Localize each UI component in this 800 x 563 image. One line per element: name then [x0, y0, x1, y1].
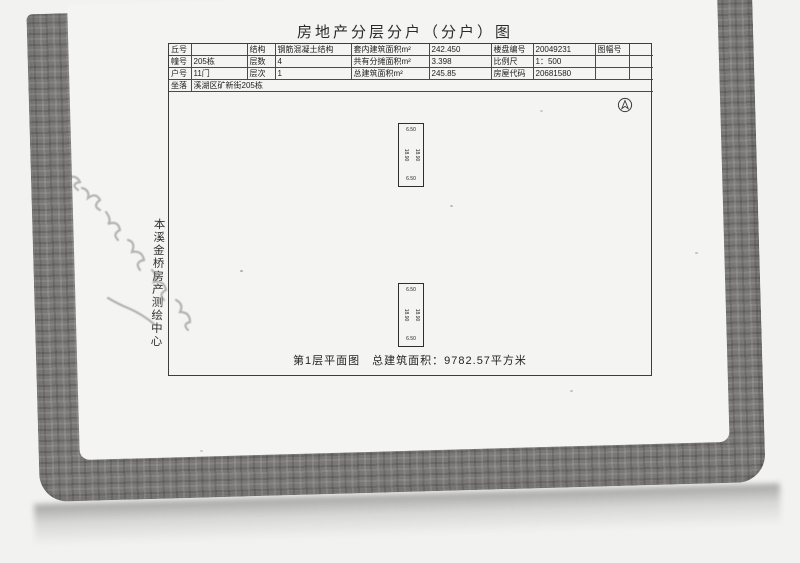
field-value-qiuhao: [191, 44, 247, 56]
field-value-fentan-area: 3.398: [429, 56, 491, 68]
dimension-label: 18.90: [414, 149, 419, 162]
dimension-label: 6.50: [399, 128, 423, 133]
field-label-jiegou: 结构: [247, 44, 275, 56]
field-value-huhao: 11门: [191, 68, 247, 80]
field-value-bilichi: 1：500: [533, 56, 595, 68]
field-value-zuoluo: 溪湖区矿新街205栋: [191, 80, 653, 92]
scanned-document: 房地产分层分户（分户）图 丘号 结构 钢筋混凝土结构 套内建筑面积m² 242.…: [0, 0, 800, 563]
field-value-taonei-area: 242.450: [429, 44, 491, 56]
field-label-loupan-no: 楼盘编号: [491, 44, 533, 56]
field-value-tufu-no: [629, 44, 653, 56]
field-label-cengci: 层次: [247, 68, 275, 80]
frame-shadow: [34, 483, 781, 546]
empty-cell: [629, 68, 653, 80]
dimension-label: 18.90: [414, 309, 419, 322]
field-label-huhao: 户号: [169, 68, 191, 80]
field-value-cengci: 1: [275, 68, 351, 80]
handwritten-scribble: [48, 148, 218, 348]
page-title: 房地产分层分户（分户）图: [0, 21, 800, 42]
field-label-qiuhao: 丘号: [169, 44, 191, 56]
info-table: 丘号 结构 钢筋混凝土结构 套内建筑面积m² 242.450 楼盘编号 2004…: [169, 44, 653, 92]
dimension-label: 6.50: [399, 177, 423, 182]
unit-outline-2: 6.50 18.90 18.90 6.50: [398, 283, 424, 347]
dimension-label: 18.90: [403, 309, 408, 322]
field-value-zhuanghao: 205栋: [191, 56, 247, 68]
dimension-label: 18.90: [403, 149, 408, 162]
field-label-total-area: 总建筑面积m²: [351, 68, 429, 80]
field-label-zhuanghao: 幢号: [169, 56, 191, 68]
field-label-taonei-area: 套内建筑面积m²: [351, 44, 429, 56]
table-row: 坐落 溪湖区矿新街205栋: [169, 80, 653, 92]
dimension-label: 6.50: [399, 288, 423, 293]
scan-noise: [240, 270, 243, 272]
empty-cell: [595, 68, 629, 80]
north-arrow-icon: [617, 97, 633, 113]
field-value-total-area: 245.85: [429, 68, 491, 80]
field-label-fentan-area: 共有分摊面积m²: [351, 56, 429, 68]
plan-caption: 第1层平面图 总建筑面积：9782.57平方米: [169, 352, 651, 368]
field-value-jiegou: 钢筋混凝土结构: [275, 44, 351, 56]
table-row: 丘号 结构 钢筋混凝土结构 套内建筑面积m² 242.450 楼盘编号 2004…: [169, 44, 653, 56]
empty-cell: [629, 56, 653, 68]
field-label-cengshu: 层数: [247, 56, 275, 68]
empty-cell: [595, 56, 629, 68]
field-value-cengshu: 4: [275, 56, 351, 68]
field-value-house-code: 20681580: [533, 68, 595, 80]
plan-sheet: 丘号 结构 钢筋混凝土结构 套内建筑面积m² 242.450 楼盘编号 2004…: [168, 43, 652, 376]
field-label-house-code: 房屋代码: [491, 68, 533, 80]
field-label-zuoluo: 坐落: [169, 80, 191, 92]
field-value-loupan-no: 20049231: [533, 44, 595, 56]
unit-outline-1: 6.50 18.90 18.90 6.50: [398, 123, 424, 187]
table-row: 户号 11门 层次 1 总建筑面积m² 245.85 房屋代码 20681580: [169, 68, 653, 80]
field-label-bilichi: 比例尺: [491, 56, 533, 68]
dimension-label: 6.50: [399, 337, 423, 342]
field-label-tufu-no: 图幅号: [595, 44, 629, 56]
table-row: 幢号 205栋 层数 4 共有分摊面积m² 3.398 比例尺 1：500: [169, 56, 653, 68]
